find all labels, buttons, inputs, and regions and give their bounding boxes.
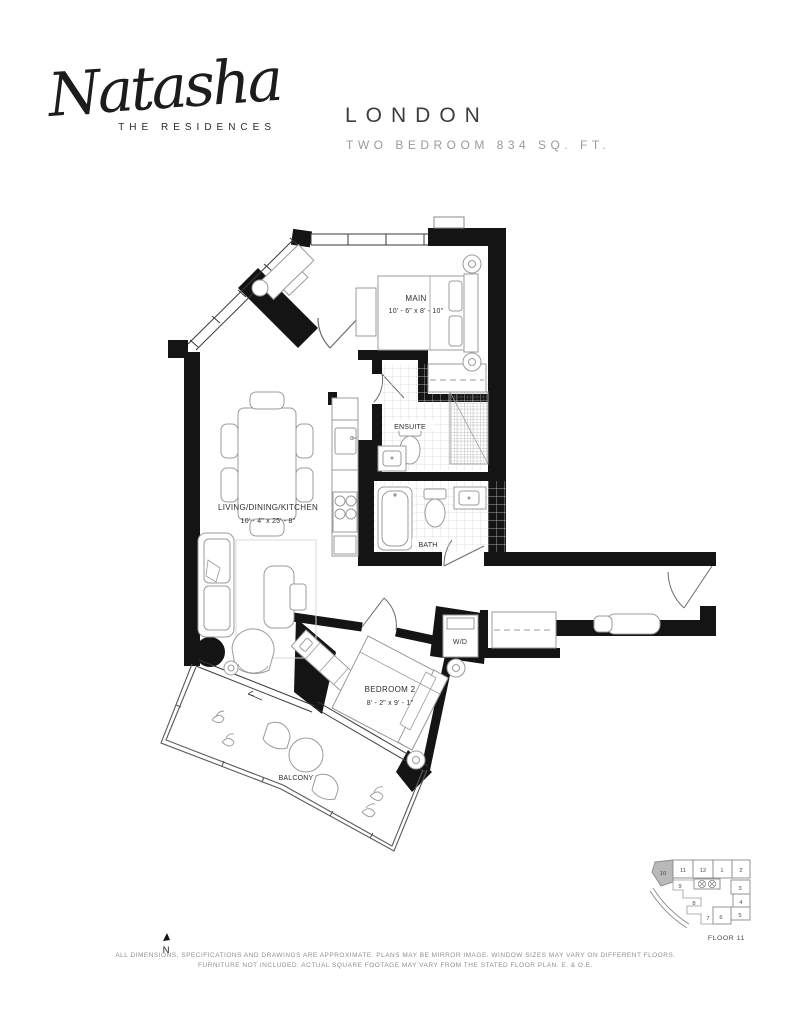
balcony-label: BALCONY (279, 775, 314, 782)
key-unit-7: 7 (706, 916, 709, 922)
key-unit-9: 9 (678, 884, 681, 890)
armchair (224, 629, 274, 675)
key-unit-11: 11 (680, 868, 686, 874)
key-plan: 10 11 12 1 2 3 4 5 9 8 7 6 FLOOR 11 (650, 860, 750, 942)
living-label: LIVING/DINING/KITCHEN (218, 503, 318, 512)
bedroom2-dims: 8' - 2" x 9' - 1" (367, 700, 414, 707)
main-label: MAIN (405, 294, 426, 303)
bathtub (376, 485, 414, 552)
key-unit-3: 3 (738, 886, 741, 892)
key-plan-floor-label: FLOOR 11 (708, 935, 745, 942)
dining-table (221, 392, 313, 536)
stove (333, 492, 357, 532)
bath: BATH (374, 481, 506, 552)
north-arrow-icon (163, 933, 170, 941)
disclaimer: ALL DIMENSIONS, SPECIFICATIONS AND DRAWI… (0, 951, 791, 971)
vanity-sink (378, 446, 406, 471)
key-unit-10: 10 (660, 871, 666, 877)
key-unit-6: 6 (719, 915, 722, 921)
floorplan-page: Natasha THE RESIDENCES LONDON TWO BEDROO… (0, 0, 791, 1024)
key-unit-2: 2 (739, 868, 742, 874)
kitchen (332, 398, 358, 556)
desk-chair (252, 280, 268, 296)
vanity-sink (454, 487, 486, 509)
living-dims: 10' - 4" x 25' - 8" (241, 518, 296, 525)
ensuite: ENSUITE (378, 364, 488, 471)
laundry: W/D (443, 615, 478, 657)
bath-label: BATH (419, 542, 438, 549)
bench (594, 614, 660, 634)
key-unit-8: 8 (692, 901, 695, 907)
key-unit-12: 12 (700, 868, 706, 874)
floorplan-drawing: ENSUITE BATH (0, 0, 791, 1024)
balcony-table-chairs (263, 722, 338, 799)
main-dims: 10' - 6" x 8' - 10" (389, 308, 444, 315)
bedroom2-label: BEDROOM 2 (365, 685, 416, 694)
kitchen-sink (335, 428, 357, 454)
toilet (424, 489, 446, 527)
ensuite-label: ENSUITE (394, 424, 426, 431)
disclaimer-line2: FURNITURE NOT INCLUDED. ACTUAL SQUARE FO… (0, 961, 791, 971)
key-unit-1: 1 (720, 868, 723, 874)
sofa (198, 533, 234, 637)
wd-label: W/D (453, 639, 467, 646)
disclaimer-line1: ALL DIMENSIONS, SPECIFICATIONS AND DRAWI… (0, 951, 791, 961)
key-unit-5: 5 (738, 913, 741, 919)
